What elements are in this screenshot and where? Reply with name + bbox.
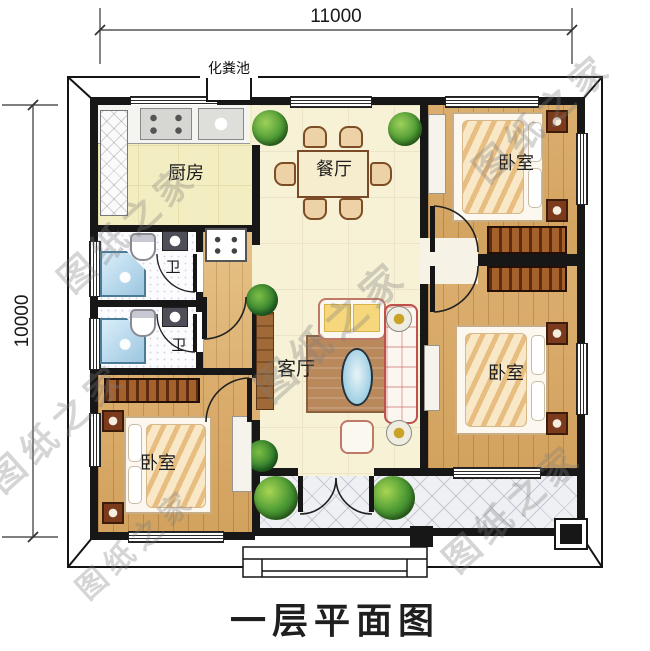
- septic-tank-label: 化粪池: [200, 58, 258, 78]
- corridor-door: [202, 297, 246, 339]
- floor-plan: 厨房 餐厅 客厅 卧室 卧室 卧室 卫 卫 化粪池: [0, 0, 650, 651]
- bedroom-bl-door: [206, 378, 252, 422]
- bath-lower-door: [157, 314, 197, 352]
- entry-steps: [243, 547, 427, 577]
- doors-and-steps-layer: [0, 0, 650, 651]
- bedroom-br-door: [430, 266, 478, 312]
- bedroom-tr-door: [430, 206, 478, 252]
- entrance-double-door: [298, 476, 374, 514]
- bath-upper-door: [157, 254, 197, 292]
